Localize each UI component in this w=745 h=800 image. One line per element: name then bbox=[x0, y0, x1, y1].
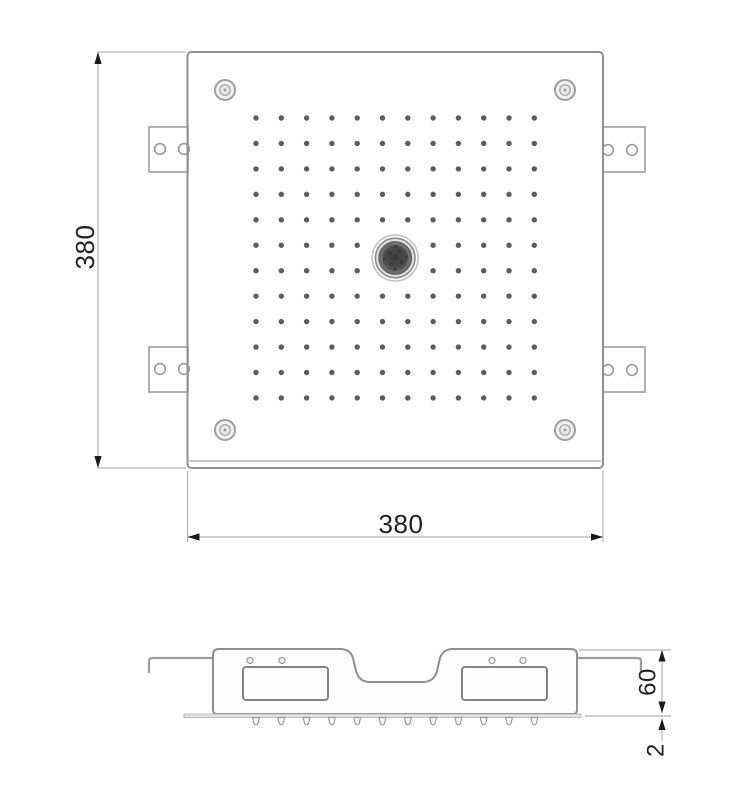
nozzle-dot bbox=[532, 370, 537, 375]
nozzle-dot bbox=[532, 243, 537, 248]
nozzle-dot bbox=[532, 192, 537, 197]
nozzle-dot bbox=[355, 166, 360, 171]
nozzle-dot bbox=[430, 293, 435, 298]
nozzle-dot bbox=[304, 115, 309, 120]
center-nozzle bbox=[372, 235, 418, 281]
nozzle-dot bbox=[506, 166, 511, 171]
nozzle-dot bbox=[380, 344, 385, 349]
nozzle-dot bbox=[304, 395, 309, 400]
dimension-panel-thickness: 2 bbox=[643, 719, 670, 757]
nozzle-dot bbox=[355, 243, 360, 248]
nozzle-dot bbox=[279, 141, 284, 146]
nozzle-dot bbox=[532, 395, 537, 400]
nozzle-dot bbox=[405, 217, 410, 222]
mounting-bracket-top-right bbox=[603, 127, 645, 172]
spray-nozzle bbox=[303, 718, 310, 725]
nozzle-dot bbox=[279, 395, 284, 400]
nozzle-dot bbox=[481, 217, 486, 222]
nozzle-dot bbox=[279, 293, 284, 298]
nozzle-dot bbox=[506, 293, 511, 298]
nozzle-dot bbox=[405, 141, 410, 146]
nozzle-dot bbox=[304, 192, 309, 197]
nozzle-dot bbox=[279, 370, 284, 375]
nozzle-dot bbox=[304, 268, 309, 273]
nozzle-dot bbox=[456, 319, 461, 324]
nozzle-dot bbox=[253, 344, 258, 349]
spray-nozzle bbox=[506, 718, 513, 725]
nozzle-dot bbox=[279, 192, 284, 197]
corner-screw-bottom-right bbox=[555, 420, 575, 440]
nozzle-dot bbox=[405, 344, 410, 349]
nozzle-dot bbox=[329, 115, 334, 120]
nozzle-dot bbox=[355, 293, 360, 298]
nozzle-dot bbox=[253, 370, 258, 375]
nozzle-dot bbox=[481, 115, 486, 120]
nozzle-dot bbox=[304, 217, 309, 222]
spray-nozzle bbox=[329, 718, 336, 725]
nozzle-dot bbox=[329, 217, 334, 222]
nozzle-dot bbox=[329, 141, 334, 146]
nozzle-dot bbox=[430, 141, 435, 146]
nozzle-dot bbox=[355, 141, 360, 146]
nozzle-dot bbox=[329, 166, 334, 171]
ceiling-hook-right bbox=[578, 658, 641, 673]
nozzle-dot bbox=[481, 395, 486, 400]
nozzle-dot bbox=[380, 141, 385, 146]
nozzle-dot bbox=[355, 217, 360, 222]
dimension-section-height: 60 bbox=[579, 650, 671, 716]
nozzle-dot bbox=[304, 243, 309, 248]
nozzle-dot bbox=[355, 319, 360, 324]
nozzle-dot bbox=[456, 115, 461, 120]
nozzle-dot bbox=[279, 243, 284, 248]
arrow-down-icon bbox=[94, 456, 101, 468]
nozzle-dot bbox=[304, 293, 309, 298]
nozzle-dot bbox=[405, 395, 410, 400]
nozzle-dot bbox=[253, 293, 258, 298]
nozzle-dot bbox=[253, 243, 258, 248]
housing-body bbox=[213, 649, 577, 714]
spray-nozzles bbox=[253, 718, 538, 725]
nozzle-dot bbox=[380, 166, 385, 171]
nozzle-dot bbox=[456, 217, 461, 222]
nozzle-dot bbox=[430, 243, 435, 248]
top-view: 380 380 bbox=[70, 52, 645, 542]
nozzle-dot bbox=[279, 217, 284, 222]
nozzle-dot bbox=[253, 395, 258, 400]
arrow-down-icon bbox=[658, 702, 665, 714]
nozzle-dot bbox=[506, 141, 511, 146]
nozzle-dot bbox=[405, 319, 410, 324]
nozzle-dot bbox=[506, 192, 511, 197]
mounting-bracket-bottom-right bbox=[603, 347, 645, 392]
spray-nozzle bbox=[253, 718, 260, 725]
nozzle-dot bbox=[456, 344, 461, 349]
nozzle-dot bbox=[405, 370, 410, 375]
shower-head-technical-drawing: 380 380 bbox=[0, 0, 745, 800]
nozzle-dot bbox=[456, 293, 461, 298]
dim-label-plan-width: 380 bbox=[379, 509, 424, 539]
nozzle-dot bbox=[405, 115, 410, 120]
nozzle-dot bbox=[355, 192, 360, 197]
nozzle-dot bbox=[355, 344, 360, 349]
nozzle-dot bbox=[481, 344, 486, 349]
nozzle-dot bbox=[481, 243, 486, 248]
dimension-plan-width: 380 bbox=[188, 471, 604, 542]
spray-nozzle bbox=[455, 718, 462, 725]
nozzle-dot bbox=[380, 370, 385, 375]
nozzle-dot bbox=[532, 217, 537, 222]
nozzle-dot bbox=[456, 192, 461, 197]
spray-nozzle bbox=[531, 718, 538, 725]
drawing-canvas: 380 380 bbox=[0, 0, 745, 800]
nozzle-dot bbox=[430, 319, 435, 324]
nozzle-dot bbox=[253, 192, 258, 197]
nozzle-dot bbox=[329, 344, 334, 349]
nozzle-dot bbox=[380, 217, 385, 222]
nozzle-dot bbox=[380, 319, 385, 324]
nozzle-dot bbox=[253, 268, 258, 273]
nozzle-dot bbox=[329, 395, 334, 400]
nozzle-dot bbox=[380, 192, 385, 197]
nozzle-dot bbox=[430, 395, 435, 400]
nozzle-dot bbox=[355, 395, 360, 400]
arrow-right-icon bbox=[591, 533, 603, 540]
mounting-bracket-bottom-left bbox=[149, 347, 189, 392]
dim-label-plan-height: 380 bbox=[70, 225, 100, 270]
nozzle-dot bbox=[481, 192, 486, 197]
nozzle-dot bbox=[430, 192, 435, 197]
nozzle-dot bbox=[430, 115, 435, 120]
nozzle-dot bbox=[329, 192, 334, 197]
nozzle-dot bbox=[279, 166, 284, 171]
nozzle-dot bbox=[506, 115, 511, 120]
nozzle-dot bbox=[481, 370, 486, 375]
nozzle-dot bbox=[304, 344, 309, 349]
nozzle-dot bbox=[456, 243, 461, 248]
nozzle-dot bbox=[430, 268, 435, 273]
nozzle-dot bbox=[304, 166, 309, 171]
nozzle-dot bbox=[532, 344, 537, 349]
spray-nozzle bbox=[480, 718, 487, 725]
spray-nozzle bbox=[430, 718, 437, 725]
nozzle-dot bbox=[506, 319, 511, 324]
nozzle-dot bbox=[506, 243, 511, 248]
nozzle-dot bbox=[304, 141, 309, 146]
arrow-up-icon bbox=[658, 650, 665, 662]
arrow-up-icon bbox=[94, 52, 101, 64]
arrow-up-icon bbox=[658, 719, 665, 731]
nozzle-dot bbox=[253, 217, 258, 222]
nozzle-dot bbox=[279, 268, 284, 273]
mounting-bracket-top-left bbox=[149, 127, 189, 172]
spray-nozzle bbox=[404, 718, 411, 725]
nozzle-dot bbox=[430, 370, 435, 375]
nozzle-dot bbox=[506, 344, 511, 349]
dim-label-panel-thickness: 2 bbox=[643, 743, 670, 757]
corner-screw-top-right bbox=[555, 80, 575, 100]
nozzle-dot bbox=[430, 166, 435, 171]
nozzle-dot bbox=[532, 268, 537, 273]
nozzle-dot bbox=[506, 395, 511, 400]
nozzle-dot bbox=[253, 166, 258, 171]
side-view: 60 2 bbox=[149, 649, 671, 757]
nozzle-dot bbox=[304, 370, 309, 375]
nozzle-dot bbox=[329, 319, 334, 324]
nozzle-dot bbox=[532, 293, 537, 298]
arrow-left-icon bbox=[188, 533, 200, 540]
nozzle-dot bbox=[405, 192, 410, 197]
nozzle-dot bbox=[532, 115, 537, 120]
nozzle-dot bbox=[430, 217, 435, 222]
nozzle-dot bbox=[532, 166, 537, 171]
nozzle-dot bbox=[481, 166, 486, 171]
corner-screw-bottom-left bbox=[215, 420, 235, 440]
spray-nozzle bbox=[354, 718, 361, 725]
nozzle-dot bbox=[279, 319, 284, 324]
nozzle-dot bbox=[481, 319, 486, 324]
nozzle-dot bbox=[380, 395, 385, 400]
nozzle-dot bbox=[532, 319, 537, 324]
nozzle-dot bbox=[355, 268, 360, 273]
nozzle-dot bbox=[355, 370, 360, 375]
nozzle-dot bbox=[405, 166, 410, 171]
nozzle-dot bbox=[329, 293, 334, 298]
nozzle-dot bbox=[481, 293, 486, 298]
nozzle-dot bbox=[456, 166, 461, 171]
nozzle-dot bbox=[456, 141, 461, 146]
nozzle-dot bbox=[253, 141, 258, 146]
spray-nozzle bbox=[278, 718, 285, 725]
nozzle-dot bbox=[329, 268, 334, 273]
nozzle-dot bbox=[380, 115, 385, 120]
nozzle-dot bbox=[481, 268, 486, 273]
nozzle-dot bbox=[253, 115, 258, 120]
nozzle-dot bbox=[481, 141, 486, 146]
nozzle-dot bbox=[430, 344, 435, 349]
nozzle-dot bbox=[304, 319, 309, 324]
nozzle-dot bbox=[279, 344, 284, 349]
nozzle-dot bbox=[380, 293, 385, 298]
nozzle-dot bbox=[329, 243, 334, 248]
nozzle-dot bbox=[355, 115, 360, 120]
nozzle-dot bbox=[532, 141, 537, 146]
nozzle-dot bbox=[456, 395, 461, 400]
nozzle-dot bbox=[456, 370, 461, 375]
nozzle-dot bbox=[506, 217, 511, 222]
dim-label-section-height: 60 bbox=[635, 668, 662, 696]
spray-nozzle bbox=[379, 718, 386, 725]
nozzle-dot bbox=[506, 370, 511, 375]
corner-screw-top-left bbox=[215, 80, 235, 100]
nozzle-dot bbox=[405, 293, 410, 298]
dimension-plan-height: 380 bbox=[70, 52, 186, 468]
nozzle-dot bbox=[329, 370, 334, 375]
ceiling-hook-left bbox=[149, 658, 212, 673]
nozzle-dot bbox=[279, 115, 284, 120]
nozzle-dot bbox=[506, 268, 511, 273]
nozzle-dot bbox=[456, 268, 461, 273]
nozzle-dot bbox=[253, 319, 258, 324]
